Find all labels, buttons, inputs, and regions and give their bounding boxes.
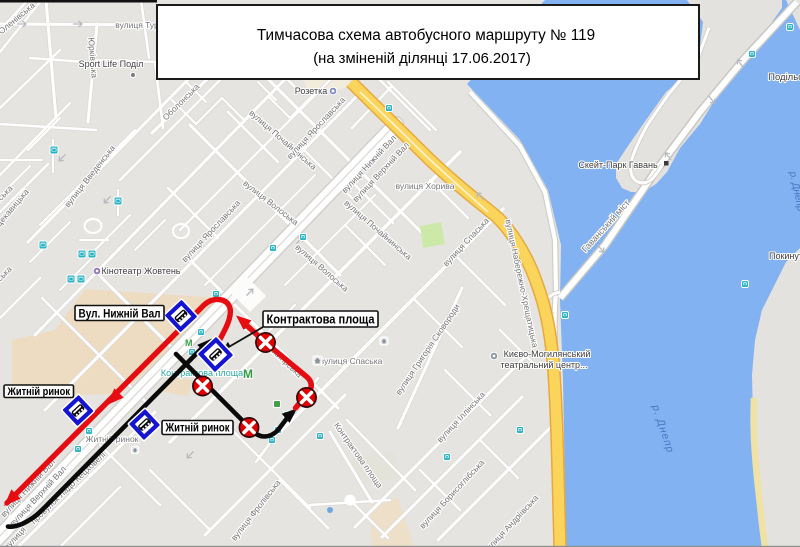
svg-text:Sport Life Поділ: Sport Life Поділ <box>79 59 144 69</box>
svg-text:Вул. Нижній Вал: Вул. Нижній Вал <box>79 306 161 320</box>
svg-text:(на зміненій ділянці 17.06.201: (на зміненій ділянці 17.06.2017) <box>313 51 531 67</box>
svg-text:М: М <box>185 338 193 348</box>
svg-text:Контрактова площа: Контрактова площа <box>267 313 376 327</box>
svg-text:Кінотеатр Жовтень: Кінотеатр Жовтень <box>102 266 181 276</box>
svg-text:Тимчасова схема автобусного ма: Тимчасова схема автобусного маршруту № 1… <box>257 27 595 44</box>
svg-text:вулиця Хорива: вулиця Хорива <box>396 181 455 191</box>
svg-text:вулиця Спаська: вулиця Спаська <box>320 356 383 366</box>
svg-text:Житній ринок: Житній ринок <box>7 386 71 398</box>
svg-text:М: М <box>243 367 253 381</box>
svg-text:театральний центр...: театральний центр... <box>500 360 587 370</box>
svg-text:вулиця Тур: вулиця Тур <box>115 20 159 30</box>
svg-text:Скейт-Парк Гавань: Скейт-Парк Гавань <box>578 160 658 170</box>
svg-text:Житній ринок: Житній ринок <box>165 423 230 435</box>
svg-text:Покинут: Покинут <box>769 251 800 261</box>
svg-text:Києво-Могилянський: Києво-Могилянський <box>504 349 591 359</box>
svg-text:Розетка: Розетка <box>295 86 328 96</box>
svg-text:Подільсь: Подільсь <box>768 72 800 83</box>
